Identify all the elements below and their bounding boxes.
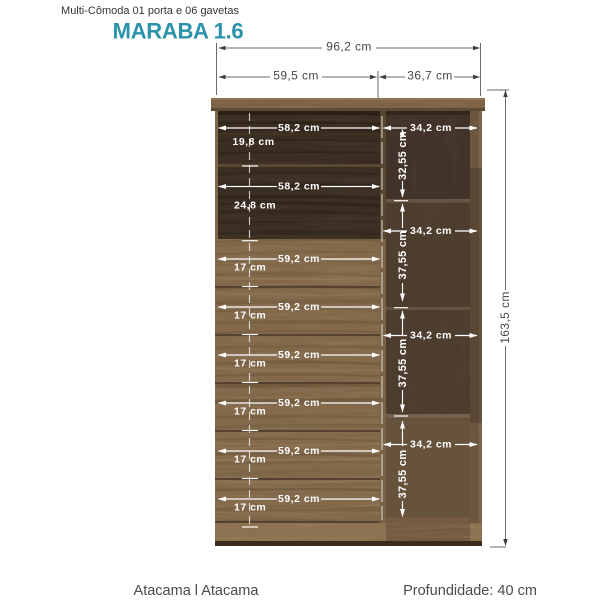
svg-text:34,2 cm: 34,2 cm xyxy=(410,439,452,451)
svg-text:59,5 cm: 59,5 cm xyxy=(273,69,319,83)
svg-text:Multi-Cômoda 01 porta e 06 gav: Multi-Cômoda 01 porta e 06 gavetas xyxy=(61,5,239,17)
svg-text:37,55 cm: 37,55 cm xyxy=(397,450,409,499)
svg-text:37,55 cm: 37,55 cm xyxy=(397,339,409,388)
svg-text:17 cm: 17 cm xyxy=(234,358,266,370)
svg-text:24,8 cm: 24,8 cm xyxy=(234,200,276,212)
svg-text:34,2 cm: 34,2 cm xyxy=(410,225,452,237)
svg-text:17 cm: 17 cm xyxy=(234,454,266,466)
svg-text:17 cm: 17 cm xyxy=(234,406,266,418)
svg-text:37,55 cm: 37,55 cm xyxy=(397,231,409,280)
svg-text:59,2 cm: 59,2 cm xyxy=(278,397,320,409)
svg-text:Profundidade: 40 cm: Profundidade: 40 cm xyxy=(403,583,537,599)
svg-text:34,2 cm: 34,2 cm xyxy=(410,122,452,134)
svg-text:59,2 cm: 59,2 cm xyxy=(278,493,320,505)
svg-text:58,2 cm: 58,2 cm xyxy=(278,122,320,134)
svg-text:17 cm: 17 cm xyxy=(234,310,266,322)
svg-text:59,2 cm: 59,2 cm xyxy=(278,301,320,313)
svg-text:58,2 cm: 58,2 cm xyxy=(278,181,320,193)
svg-text:34,2 cm: 34,2 cm xyxy=(410,330,452,342)
svg-text:MARABA 1.6: MARABA 1.6 xyxy=(113,19,244,44)
svg-text:17 cm: 17 cm xyxy=(234,502,266,514)
svg-text:96,2 cm: 96,2 cm xyxy=(326,40,372,54)
svg-text:163,5 cm: 163,5 cm xyxy=(498,291,512,344)
svg-text:32,55 cm: 32,55 cm xyxy=(397,131,409,180)
svg-text:17 cm: 17 cm xyxy=(234,262,266,274)
svg-text:59,2 cm: 59,2 cm xyxy=(278,349,320,361)
svg-text:19,8 cm: 19,8 cm xyxy=(233,136,275,148)
svg-text:59,2 cm: 59,2 cm xyxy=(278,253,320,265)
svg-text:36,7 cm: 36,7 cm xyxy=(407,69,453,83)
svg-text:59,2 cm: 59,2 cm xyxy=(278,445,320,457)
svg-text:Atacama l Atacama: Atacama l Atacama xyxy=(134,583,260,599)
